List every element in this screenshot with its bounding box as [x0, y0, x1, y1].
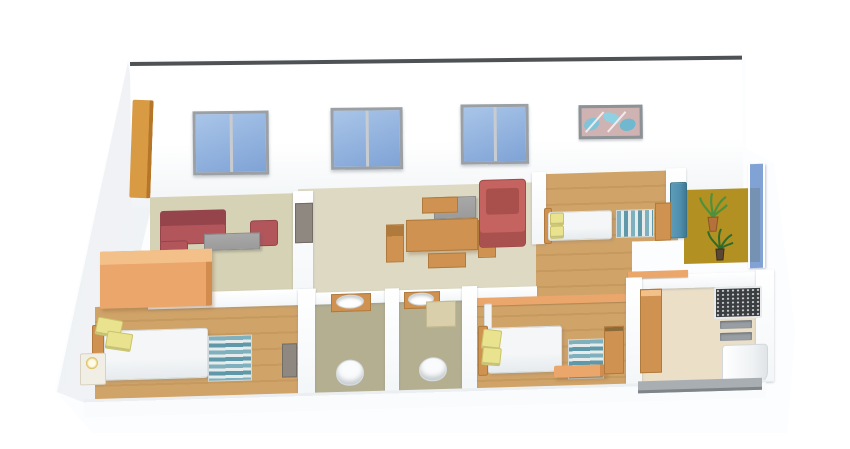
balcony-plant	[706, 227, 734, 264]
bed-bm-bench	[554, 364, 606, 377]
bed-tr-pillow-2	[550, 225, 564, 238]
bed-bl-pillow-2	[105, 331, 134, 353]
balcony-glass-railing	[748, 164, 765, 268]
wall-bath-divider	[385, 288, 399, 396]
kitchen-vent-2	[720, 332, 752, 341]
coffee-table	[204, 232, 260, 251]
balcony-door	[670, 182, 687, 238]
bath2-toilet	[419, 357, 447, 382]
bath1-toilet	[336, 359, 364, 386]
tv-cabinet	[295, 203, 313, 244]
bath2-cabinet	[426, 301, 456, 328]
dining-table	[406, 218, 478, 252]
floor-plan-render	[0, 0, 850, 449]
wall-bath-bedroom-bm	[462, 286, 477, 394]
red-lounge-chair	[479, 179, 526, 248]
wardrobe	[100, 249, 212, 309]
bedroom-tr-rug	[616, 209, 654, 238]
wardrobe-top	[100, 249, 212, 265]
bedroom-bm-dresser	[604, 326, 624, 375]
dining-bench-bottom	[428, 252, 466, 268]
wall-bedroom-bath	[298, 289, 315, 399]
dining-chair-left	[386, 224, 404, 263]
bedroom-bl-rug	[208, 334, 252, 381]
lounge-chair-seat	[486, 188, 519, 215]
bedroom-tr-dresser	[655, 202, 671, 240]
bedroom-bl-dresser	[282, 343, 297, 377]
floor-plan-plane	[0, 0, 850, 449]
kitchen-vent-1	[720, 320, 752, 329]
bed-bm-pillow-2	[481, 347, 502, 366]
granite-counter	[714, 286, 762, 319]
kitchen-cabinet-run	[640, 289, 662, 374]
bed-tr-pillow-1	[550, 212, 564, 225]
dining-bench-top	[422, 197, 458, 214]
